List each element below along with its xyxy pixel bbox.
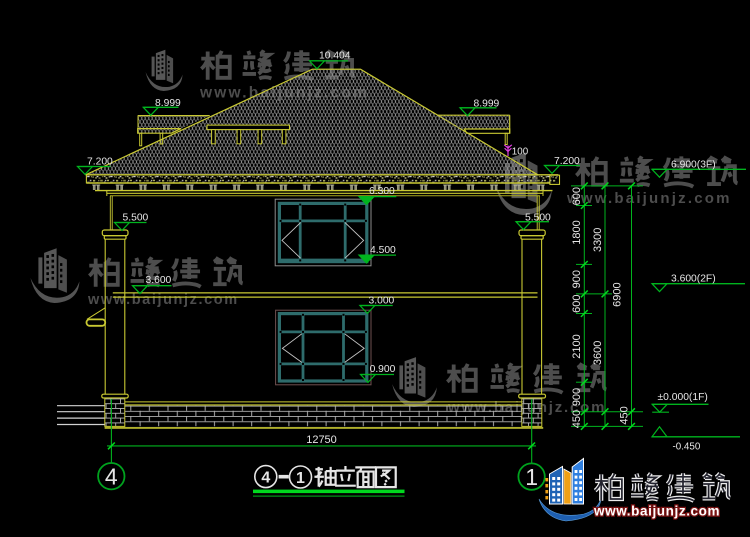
svg-text:www.baijunjz.com: www.baijunjz.com <box>593 504 720 519</box>
svg-text:10.404: 10.404 <box>319 51 351 62</box>
svg-text:www.baijunjz.com: www.baijunjz.com <box>87 292 239 308</box>
svg-text:600: 600 <box>571 295 583 313</box>
svg-text:5.500: 5.500 <box>525 212 551 223</box>
svg-text:3.600(2F): 3.600(2F) <box>671 274 716 285</box>
svg-text:5.500: 5.500 <box>123 213 149 224</box>
svg-text:3.000: 3.000 <box>369 295 395 306</box>
svg-text:900: 900 <box>571 270 583 288</box>
svg-text:6.900(3F): 6.900(3F) <box>671 159 716 170</box>
svg-text:8.999: 8.999 <box>155 98 181 109</box>
svg-text:8.999: 8.999 <box>474 98 500 109</box>
svg-text:450: 450 <box>619 406 631 424</box>
svg-text:600: 600 <box>571 187 583 205</box>
svg-text:6.300: 6.300 <box>369 186 395 197</box>
svg-text:www.baijunjz.com: www.baijunjz.com <box>566 190 732 207</box>
svg-text:7.200: 7.200 <box>87 157 113 168</box>
svg-text:6900: 6900 <box>612 282 624 306</box>
svg-text:1: 1 <box>525 464 538 490</box>
svg-text:4.500: 4.500 <box>370 245 396 256</box>
svg-text:12750: 12750 <box>306 434 337 446</box>
svg-text:-0.450: -0.450 <box>673 441 701 452</box>
svg-text:3600: 3600 <box>592 341 604 365</box>
svg-text:450: 450 <box>571 410 583 428</box>
svg-text:4: 4 <box>261 469 270 486</box>
svg-text:4: 4 <box>105 464 118 490</box>
svg-text:2100: 2100 <box>571 334 583 358</box>
svg-text:3.600: 3.600 <box>146 275 172 286</box>
svg-text:±0.000(1F): ±0.000(1F) <box>658 392 708 403</box>
svg-text:7.200: 7.200 <box>554 156 580 167</box>
svg-text:3300: 3300 <box>592 228 604 252</box>
svg-text:900: 900 <box>571 388 583 406</box>
svg-text:1: 1 <box>296 470 305 487</box>
svg-text:100: 100 <box>512 147 529 158</box>
svg-text:1800: 1800 <box>571 220 583 244</box>
svg-text:0.900: 0.900 <box>370 364 396 375</box>
